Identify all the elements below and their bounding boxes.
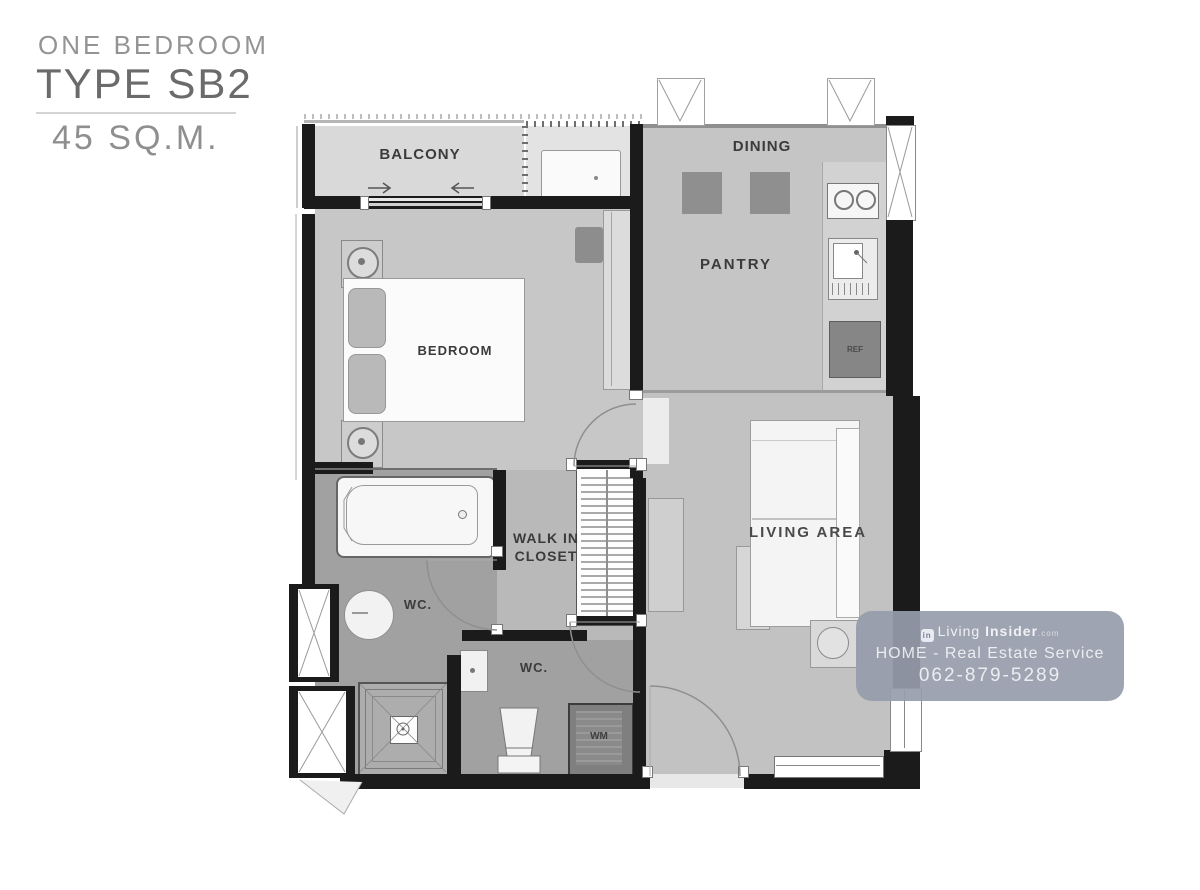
living-insider-logo-icon: in xyxy=(921,629,934,642)
wall-walkin-living xyxy=(633,478,646,626)
window-right-top xyxy=(886,125,916,221)
wardrobe-rail xyxy=(606,470,608,620)
pillow-bottom xyxy=(348,354,386,414)
bedroom-tv xyxy=(575,227,603,263)
washing-machine: WM xyxy=(568,703,634,777)
watermark-service-line: HOME - Real Estate Service xyxy=(856,645,1124,663)
wall-bottom-wc2 xyxy=(462,774,634,789)
sliding-door-track1 xyxy=(366,198,484,201)
ext-line-left-top xyxy=(296,126,298,208)
roof-line-ticks xyxy=(304,114,642,119)
sofa-cushion-line xyxy=(752,518,836,520)
jamb-bath-door-bottom xyxy=(491,624,503,635)
pantry-label: PANTRY xyxy=(696,256,776,273)
watermark-brand: inLiving Insider.com xyxy=(856,623,1124,642)
wall-right-cap-top xyxy=(886,116,914,125)
shower-drain xyxy=(390,716,418,744)
jamb-wardrobe-tr xyxy=(636,458,647,471)
watermark-phone: 062-879-5289 xyxy=(856,665,1124,687)
pantry-living-line xyxy=(643,390,886,393)
stove-burner-left-icon xyxy=(834,190,854,210)
stove-burner-right-icon xyxy=(856,190,876,210)
wc-toilet-label: WC. xyxy=(506,660,562,675)
walkin-label-line1: WALK IN xyxy=(500,530,592,546)
column-box-left xyxy=(657,78,705,126)
lamp-top-dot xyxy=(358,258,365,265)
sofa-arm-line xyxy=(752,440,836,441)
bedroom-cabinet-line xyxy=(611,212,612,386)
pillow-top xyxy=(348,288,386,348)
jamb-bedroom-door-top xyxy=(629,390,643,400)
plant-icon xyxy=(817,627,849,659)
window-bottom xyxy=(774,756,884,778)
refrigerator-label: REF xyxy=(830,322,880,377)
living-label: LIVING AREA xyxy=(748,524,868,541)
wc2-basin-dot xyxy=(470,668,475,673)
walkin-label-line2: CLOSET xyxy=(500,548,592,564)
bathtub-drain-dot xyxy=(458,510,467,519)
wash-basin-round xyxy=(344,590,394,640)
wall-bottom-shower xyxy=(340,774,462,789)
plan-subtitle: ONE BEDROOM xyxy=(38,30,269,61)
shaft1-inner xyxy=(298,589,330,677)
dining-chair-left xyxy=(682,172,722,214)
ext-line-left-mid xyxy=(295,214,297,480)
wall-right-pantry xyxy=(886,220,913,396)
plan-type-title: TYPE SB2 xyxy=(36,60,253,108)
wall-left-bedroom xyxy=(302,214,315,480)
bedroom-door-threshold xyxy=(643,398,669,464)
kitchen-sink-basin xyxy=(833,243,863,279)
jamb-wardrobe-br xyxy=(636,614,647,627)
jamb-entry-right xyxy=(738,766,749,778)
entry-door-threshold xyxy=(650,774,744,788)
wall-central-top xyxy=(630,124,643,209)
balcony-label: BALCONY xyxy=(360,146,480,163)
wall-shower-wc2 xyxy=(447,655,461,774)
wall-wc2-corridor xyxy=(633,626,646,774)
ac-unit-dot xyxy=(594,176,598,180)
kitchen-faucet-dot xyxy=(854,250,859,255)
washing-machine-label: WM xyxy=(570,731,628,742)
dining-label: DINING xyxy=(722,138,802,155)
balcony-railing xyxy=(304,120,524,123)
wall-corner-br xyxy=(884,750,920,789)
sofa-back xyxy=(836,428,860,618)
column-box-right xyxy=(827,78,875,126)
sliding-door-track2 xyxy=(366,203,484,206)
bedroom-cabinet xyxy=(603,210,633,390)
ac-ledge-hatch-top xyxy=(526,121,642,127)
watermark-brand-prefix: Living xyxy=(938,623,981,639)
jamb-wardrobe-bl xyxy=(566,614,577,627)
wall-left-bath xyxy=(302,480,315,586)
lamp-bottom-dot xyxy=(358,438,365,445)
dining-chair-right xyxy=(750,172,790,214)
jamb-entry-left xyxy=(642,766,653,778)
plan-area: 45 SQ.M. xyxy=(52,119,220,158)
wash-basin-handle xyxy=(352,612,368,614)
wc-bath-label: WC. xyxy=(390,597,446,612)
watermark-brand-suffix: Insider xyxy=(985,623,1038,639)
ac-unit xyxy=(541,150,621,200)
bedroom-label: BEDROOM xyxy=(390,343,520,358)
wardrobe-cap-bottom xyxy=(576,616,638,625)
wall-bath-headerline xyxy=(315,468,497,470)
watermark-card: inLiving Insider.com HOME - Real Estate … xyxy=(856,611,1124,701)
jamb-wardrobe-tl xyxy=(566,458,577,471)
dish-drainer xyxy=(832,283,872,295)
shaft2-inner xyxy=(298,691,346,773)
jamb-sliding-right xyxy=(482,196,491,210)
title-divider xyxy=(36,112,236,114)
watermark-brand-tld: .com xyxy=(1038,629,1059,638)
wall-wc2-top xyxy=(462,630,587,641)
tv-console-living xyxy=(648,498,684,612)
refrigerator: REF xyxy=(829,321,881,378)
wall-central-mid xyxy=(630,209,643,398)
jamb-sliding-left xyxy=(360,196,369,210)
floor-plan-page: ONE BEDROOM TYPE SB2 45 SQ.M. REF xyxy=(0,0,1200,890)
window-bottom-line xyxy=(776,765,880,766)
